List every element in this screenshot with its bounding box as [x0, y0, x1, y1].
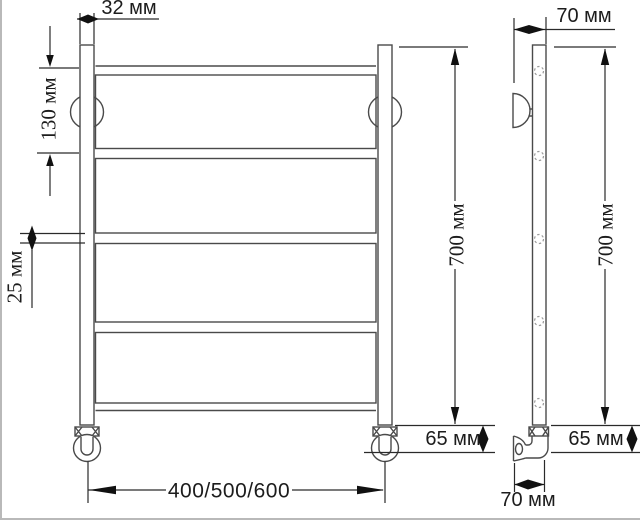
towel-rail-dimension-drawing: 32 мм 70 мм 130 мм 25 мм 700 мм 700 мм 6…: [0, 0, 640, 520]
front-panel-3: [96, 244, 377, 323]
front-panel-2: [96, 159, 377, 234]
label-wall-offset-top: 70 мм: [556, 6, 611, 26]
label-foot-height-front: 65 мм: [425, 429, 480, 449]
label-height-side: 700 мм: [596, 203, 617, 266]
front-left-foot: [74, 427, 101, 462]
dim-wall-offset-bottom: [515, 460, 545, 492]
front-view: [71, 45, 402, 462]
dim-rung-thickness: [20, 226, 85, 309]
label-height-front: 700 мм: [447, 203, 468, 266]
label-tube-width: 32 мм: [101, 0, 156, 18]
side-bracket-icon: [513, 94, 533, 128]
label-wall-offset-bottom: 70 мм: [500, 490, 555, 510]
side-view: [513, 45, 549, 461]
front-right-foot: [372, 427, 399, 462]
front-right-tube: [378, 45, 392, 425]
label-width-options: 400/500/600: [168, 481, 290, 502]
label-foot-height-side: 65 мм: [568, 429, 623, 449]
label-top-rung-offset: 130 мм: [39, 77, 60, 140]
label-rung-thickness: 25 мм: [5, 251, 26, 304]
drawing-svg: [2, 0, 640, 520]
front-panel-1: [96, 75, 377, 149]
front-panel-4: [96, 333, 377, 404]
front-left-tube: [80, 45, 94, 425]
side-foot-elbow: [514, 427, 549, 461]
